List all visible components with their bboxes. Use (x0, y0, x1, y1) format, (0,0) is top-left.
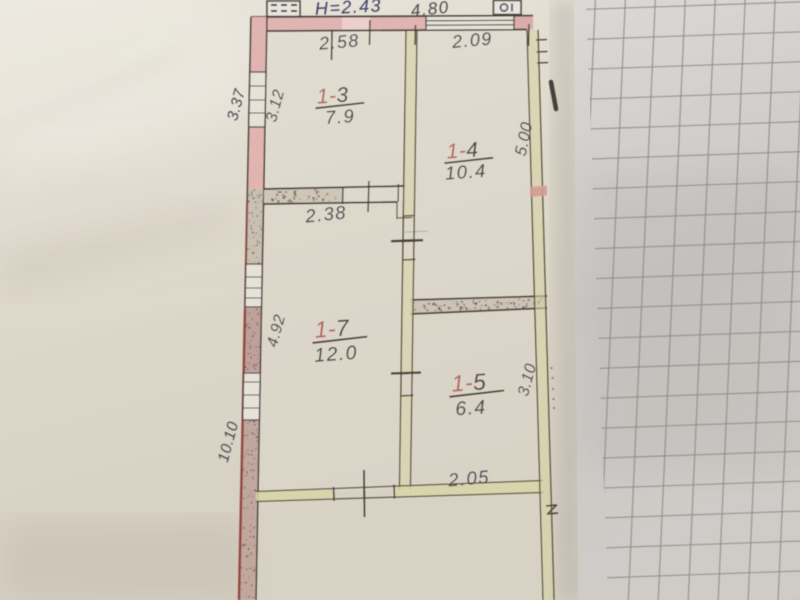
svg-text:10.4: 10.4 (444, 160, 487, 184)
svg-text:12.0: 12.0 (314, 342, 359, 367)
svg-text:7.9: 7.9 (324, 105, 355, 128)
svg-text:2.09: 2.09 (450, 29, 493, 53)
svg-text:2.58: 2.58 (317, 30, 360, 54)
svg-text:2.38: 2.38 (303, 201, 348, 226)
svg-text:2.05: 2.05 (446, 466, 490, 491)
svg-text:6.4: 6.4 (455, 396, 488, 420)
